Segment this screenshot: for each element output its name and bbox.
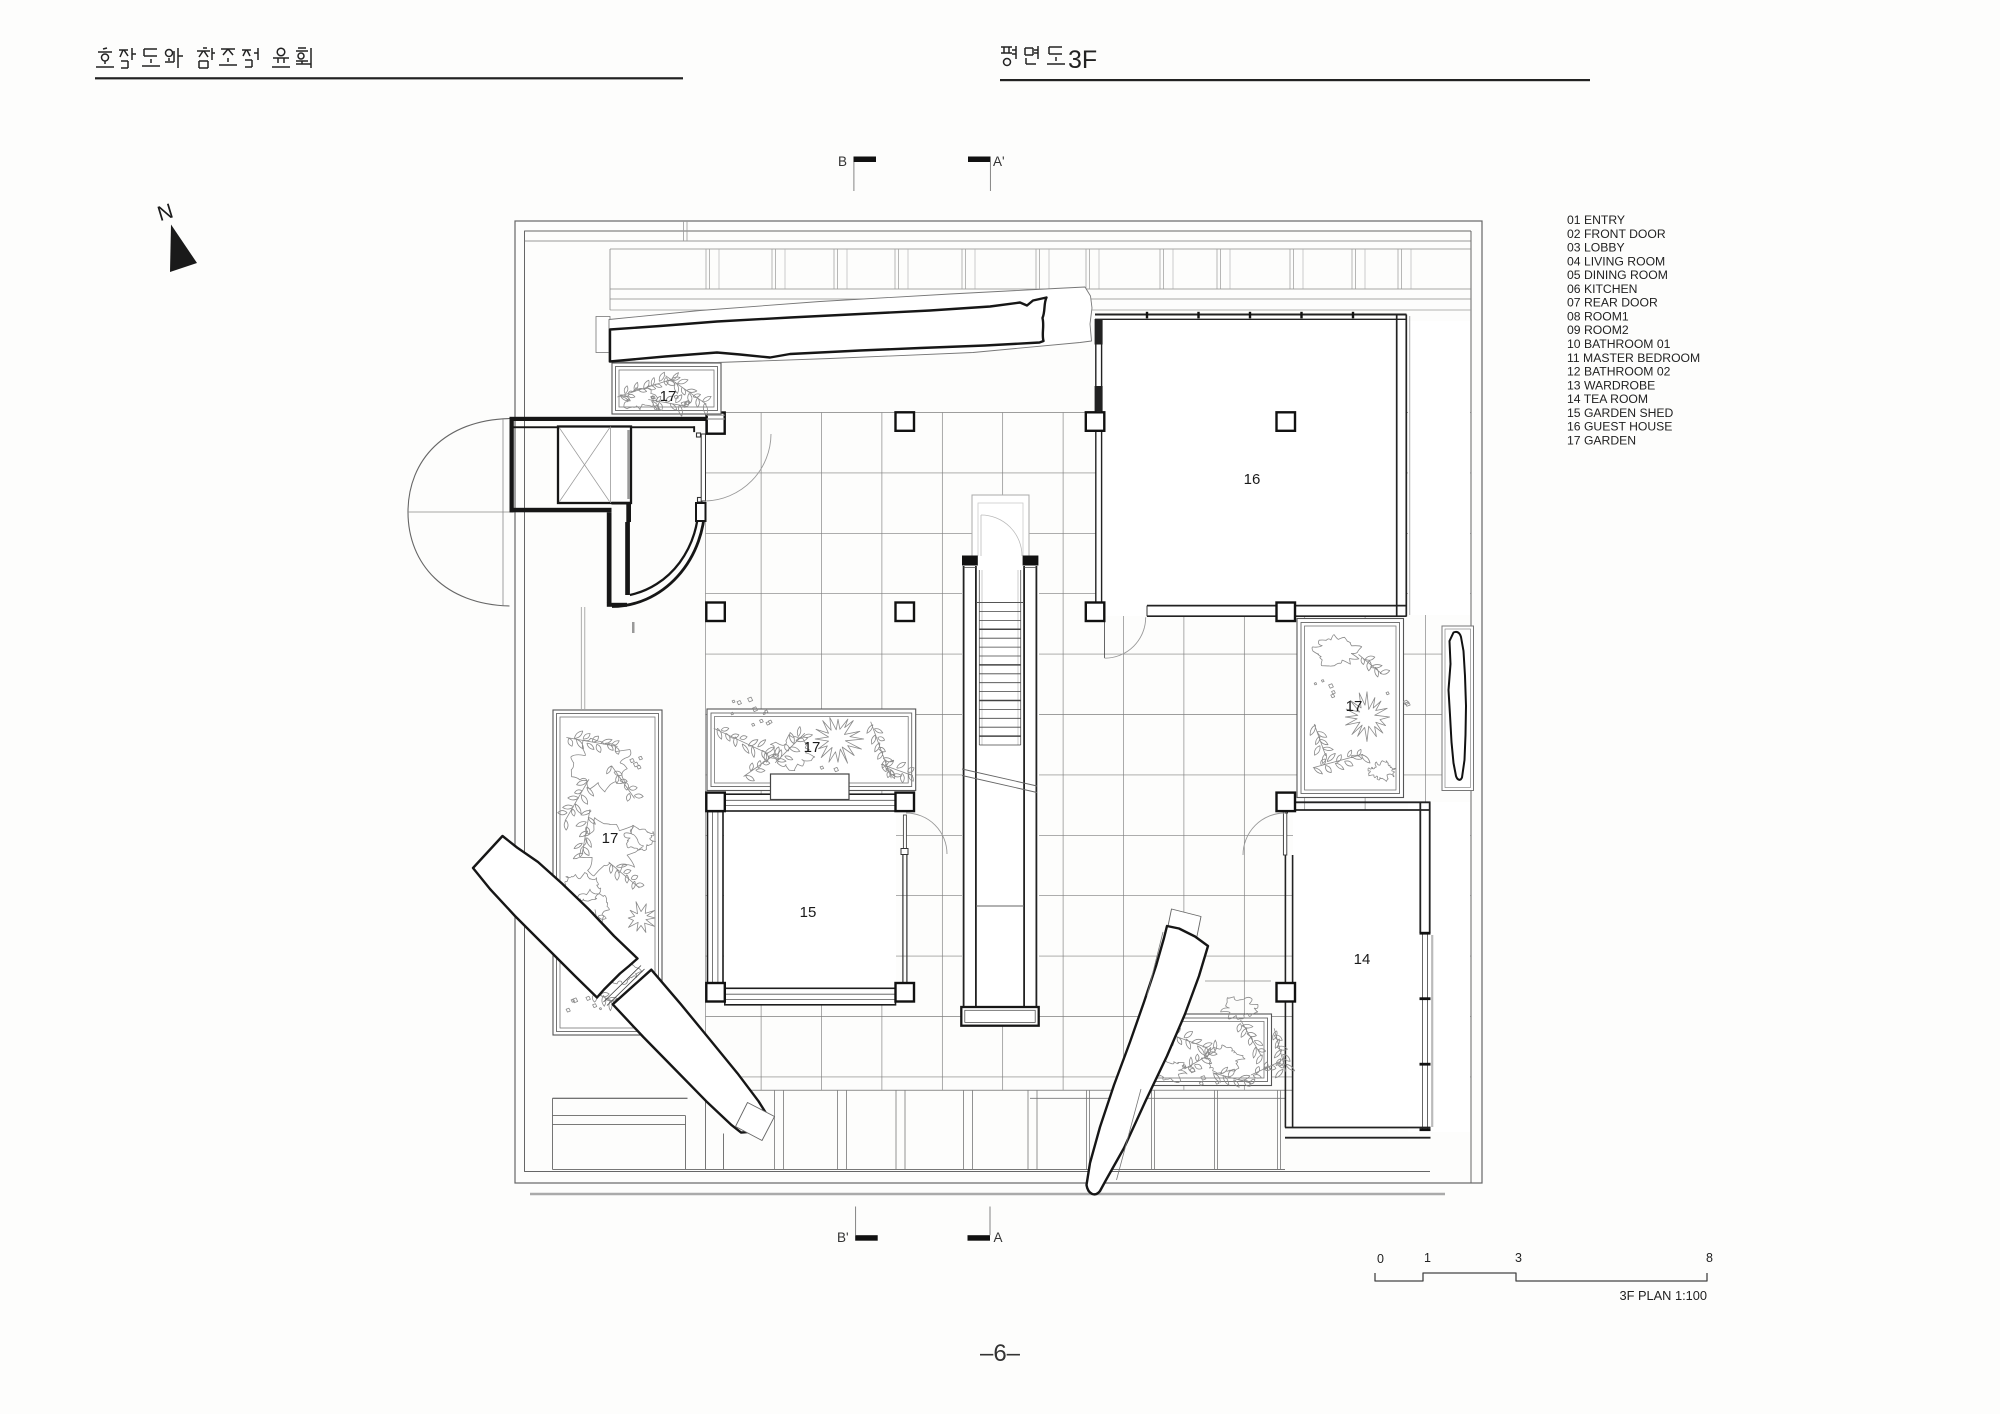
svg-text:01 ENTRY: 01 ENTRY: [1567, 213, 1625, 227]
svg-text:3F: 3F: [1068, 46, 1097, 74]
svg-text:1: 1: [1424, 1251, 1431, 1265]
svg-text:11 MASTER BEDROOM: 11 MASTER BEDROOM: [1567, 351, 1700, 365]
svg-text:B': B': [837, 1230, 849, 1245]
svg-text:14: 14: [1354, 951, 1371, 968]
svg-text:A': A': [993, 154, 1005, 169]
svg-text:17: 17: [804, 739, 821, 756]
svg-text:04 LIVING ROOM: 04 LIVING ROOM: [1567, 254, 1665, 268]
svg-text:16 GUEST HOUSE: 16 GUEST HOUSE: [1567, 420, 1672, 434]
svg-text:07 REAR DOOR: 07 REAR DOOR: [1567, 296, 1658, 310]
svg-text:B: B: [838, 154, 847, 169]
svg-text:06 KITCHEN: 06 KITCHEN: [1567, 282, 1637, 296]
svg-text:03 LOBBY: 03 LOBBY: [1567, 241, 1625, 255]
svg-text:3: 3: [1515, 1251, 1522, 1265]
svg-text:16: 16: [1244, 471, 1261, 488]
svg-text:09 ROOM2: 09 ROOM2: [1567, 323, 1629, 337]
svg-text:17: 17: [660, 388, 677, 405]
svg-text:12 BATHROOM 02: 12 BATHROOM 02: [1567, 365, 1671, 379]
svg-text:13 WARDROBE: 13 WARDROBE: [1567, 378, 1655, 392]
svg-text:17 GARDEN: 17 GARDEN: [1567, 433, 1636, 447]
svg-text:3F PLAN 1:100: 3F PLAN 1:100: [1620, 1288, 1708, 1303]
svg-text:05 DINING ROOM: 05 DINING ROOM: [1567, 268, 1668, 282]
svg-text:08 ROOM1: 08 ROOM1: [1567, 309, 1629, 323]
svg-text:0: 0: [1377, 1252, 1384, 1266]
svg-text:14 TEA ROOM: 14 TEA ROOM: [1567, 392, 1648, 406]
svg-text:15: 15: [800, 904, 817, 921]
svg-text:–6–: –6–: [980, 1340, 1021, 1367]
svg-text:15 GARDEN SHED: 15 GARDEN SHED: [1567, 406, 1674, 420]
svg-text:17: 17: [1346, 698, 1363, 715]
svg-text:8: 8: [1706, 1251, 1713, 1265]
svg-text:02 FRONT DOOR: 02 FRONT DOOR: [1567, 227, 1666, 241]
svg-text:A: A: [994, 1230, 1003, 1245]
svg-text:17: 17: [602, 830, 619, 847]
svg-text:10 BATHROOM 01: 10 BATHROOM 01: [1567, 337, 1671, 351]
